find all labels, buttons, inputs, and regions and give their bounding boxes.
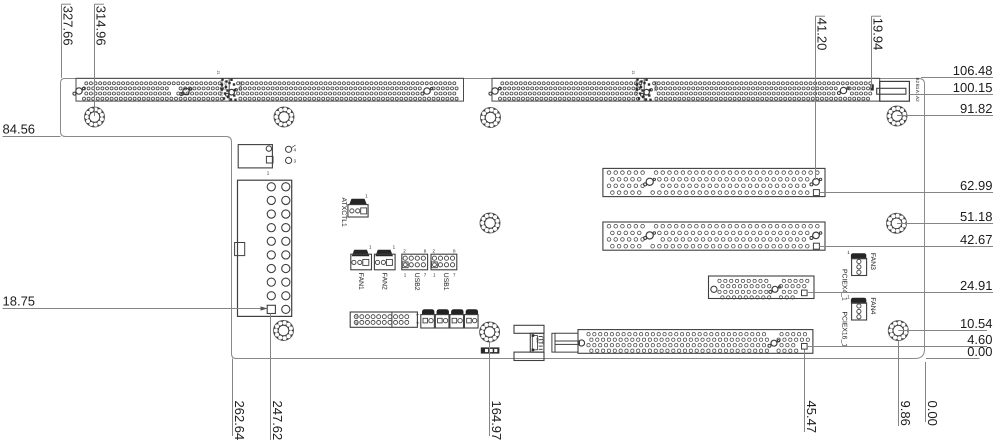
svg-text:9.86: 9.86 xyxy=(898,401,913,426)
svg-text:GND: GND xyxy=(541,337,545,345)
svg-text:FAN3: FAN3 xyxy=(869,253,876,270)
svg-text:45.47: 45.47 xyxy=(804,401,819,434)
svg-text:24.91: 24.91 xyxy=(960,278,993,293)
svg-text:51.18: 51.18 xyxy=(960,209,993,224)
svg-text:42.67: 42.67 xyxy=(960,232,993,247)
svg-text:B1: B1 xyxy=(915,84,920,90)
svg-text:100.15: 100.15 xyxy=(953,80,993,95)
svg-text:2: 2 xyxy=(415,322,419,324)
svg-text:20: 20 xyxy=(355,321,359,325)
svg-text:B2: B2 xyxy=(915,78,920,84)
svg-text:41.20: 41.20 xyxy=(814,18,829,51)
svg-text:262.64: 262.64 xyxy=(232,401,247,441)
svg-text:62.99: 62.99 xyxy=(960,178,993,193)
svg-text:USB2: USB2 xyxy=(413,273,420,291)
svg-text:J1: J1 xyxy=(631,71,635,75)
svg-text:106.48: 106.48 xyxy=(953,63,993,78)
svg-text:84.56: 84.56 xyxy=(3,122,36,137)
svg-text:FAN1: FAN1 xyxy=(357,273,364,290)
svg-text:91.82: 91.82 xyxy=(960,101,993,116)
svg-text:314.96: 314.96 xyxy=(93,6,108,46)
svg-text:19: 19 xyxy=(355,314,359,318)
svg-text:327.66: 327.66 xyxy=(60,6,75,46)
svg-text:FAN4: FAN4 xyxy=(869,297,876,314)
svg-text:164.97: 164.97 xyxy=(489,401,504,441)
svg-text:PCIEX16_1: PCIEX16_1 xyxy=(841,312,848,348)
svg-text:SPK12: SPK12 xyxy=(238,81,242,92)
svg-text:SPK12: SPK12 xyxy=(653,81,657,92)
svg-text:12V: 12V xyxy=(536,337,540,344)
svg-text:18.75: 18.75 xyxy=(3,294,36,309)
svg-text:FAN2: FAN2 xyxy=(381,273,388,290)
svg-text:10.54: 10.54 xyxy=(960,316,993,331)
svg-text:23456: 23456 xyxy=(638,81,642,91)
svg-text:ATXCTL1: ATXCTL1 xyxy=(340,198,347,228)
svg-text:A1: A1 xyxy=(915,90,920,96)
svg-text:23456: 23456 xyxy=(223,81,227,91)
svg-text:247.62: 247.62 xyxy=(270,401,285,441)
svg-text:0.00: 0.00 xyxy=(967,344,992,359)
svg-text:A2: A2 xyxy=(915,96,920,102)
svg-text:19.94: 19.94 xyxy=(870,18,885,51)
svg-text:PWRLED1: PWRLED1 xyxy=(220,80,224,97)
svg-text:J1: J1 xyxy=(216,71,220,75)
svg-text:0.00: 0.00 xyxy=(925,401,940,426)
svg-text:USB1: USB1 xyxy=(442,273,449,291)
svg-text:1: 1 xyxy=(415,314,419,316)
svg-text:PWRLED1: PWRLED1 xyxy=(635,80,639,97)
